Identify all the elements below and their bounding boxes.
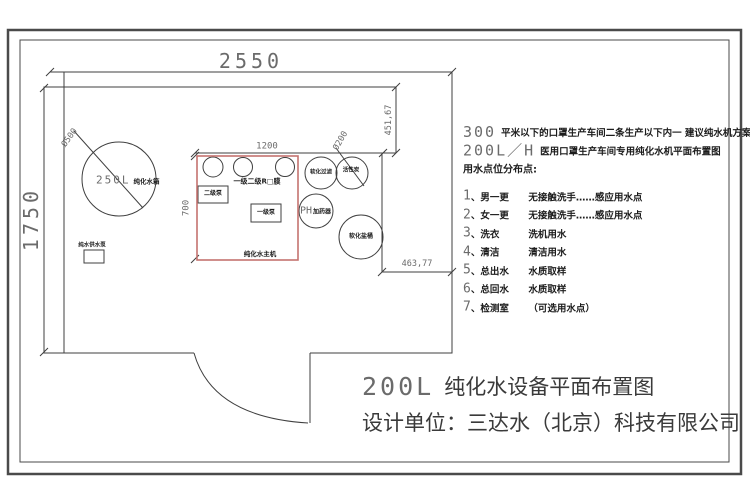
item-number: 3 <box>463 226 471 241</box>
notes-heading: 用水点位分布点: <box>463 161 537 176</box>
dim-niche-width: 463,77 <box>402 260 433 269</box>
item-description: 无接触洗手……感应用水点 <box>528 208 642 222</box>
item-separator: 、 <box>471 300 481 314</box>
drawing-title-text: 纯化水设备平面布置图 <box>444 371 654 401</box>
item-description: 清洁用水 <box>528 245 566 259</box>
activated-carbon-label: 活性炭 <box>343 168 360 174</box>
water-point-item: 5、总出水水质取样 <box>463 263 566 278</box>
water-point-item: 7、检测室（可选用水点） <box>463 300 595 315</box>
drawing-title: 200L 纯化水设备平面布置图 <box>362 371 654 401</box>
item-label: 总出水 <box>480 263 528 277</box>
item-number: 7 <box>463 300 471 315</box>
water-point-item: 6、总回水水质取样 <box>463 281 566 296</box>
item-description: 水质取样 <box>528 282 566 296</box>
item-number: 1 <box>463 189 471 204</box>
ph-dosing-label-big: PH <box>300 206 312 217</box>
item-number: 2 <box>463 207 471 222</box>
item-description: 洗机用水 <box>528 226 566 240</box>
enclosure-right-line <box>382 153 452 272</box>
designer-line: 设计单位：三达水（北京）科技有限公司 <box>362 407 740 437</box>
item-label: 检测室 <box>480 300 528 314</box>
item-label: 洗衣 <box>480 226 528 240</box>
item-description: 无接触洗手……感应用水点 <box>528 189 642 203</box>
stage2-pump-label: 二级泵 <box>204 191 222 197</box>
item-description: （可选用水点） <box>528 300 595 314</box>
drawing-title-volume: 200L <box>362 372 434 401</box>
dim-room-width: 2550 <box>219 51 283 71</box>
cad-floorplan-sheet: 2550 1750 1200 700 451,67 463,77 Ø500 Ø2… <box>0 0 750 489</box>
notes-line1-number: 300 <box>463 123 496 141</box>
ph-dosing-label-small: 加药器 <box>313 207 331 216</box>
item-number: 5 <box>463 263 471 278</box>
notes-line2: 200L／H 医用口罩生产车间专用纯化水机平面布置图 <box>463 140 721 161</box>
item-separator: 、 <box>471 226 481 240</box>
tank-label-name: 纯化水箱 <box>134 175 160 185</box>
water-point-item: 1、男一更无接触洗手……感应用水点 <box>463 189 642 204</box>
dim-unit-height: 700 <box>183 200 192 216</box>
main-unit-label: 纯化水主机 <box>244 251 277 258</box>
notes-line2-text: 医用口罩生产车间专用纯化水机平面布置图 <box>540 143 721 157</box>
designer-line-text: 设计单位：三达水（北京）科技有限公司 <box>362 407 740 437</box>
item-number: 6 <box>463 281 471 296</box>
ro-vessel-1 <box>203 157 223 177</box>
item-label: 总回水 <box>480 282 528 296</box>
ro-vessel-3 <box>276 158 295 177</box>
notes-line1-text: 平米以下的口罩生产车间二条生产以下内一 建议纯水机方案 <box>501 125 750 139</box>
notes-heading-text: 用水点位分布点: <box>463 161 537 176</box>
notes-line2-number: 200L／H <box>463 140 535 161</box>
water-point-item: 2、女一更无接触洗手……感应用水点 <box>463 207 642 222</box>
softener-filter-label: 软化过滤 <box>310 170 332 176</box>
item-label: 清洁 <box>480 245 528 259</box>
tank-diameter-line <box>74 131 143 208</box>
dim-niche-height: 451,67 <box>385 105 394 136</box>
item-separator: 、 <box>471 263 481 277</box>
tank-label: 250L 纯化水箱 <box>96 174 160 187</box>
item-description: 水质取样 <box>528 263 566 277</box>
water-point-item: 3、洗衣洗机用水 <box>463 226 566 241</box>
tank-label-volume: 250L <box>96 174 131 187</box>
dim-room-height: 1750 <box>21 187 41 251</box>
water-point-item: 4、清洁清洁用水 <box>463 244 566 259</box>
item-number: 4 <box>463 244 471 259</box>
item-separator: 、 <box>471 208 481 222</box>
salt-barrel-label: 软化盐桶 <box>349 234 373 240</box>
item-label: 女一更 <box>480 208 528 222</box>
supply-pump-box <box>84 250 104 263</box>
item-label: 男一更 <box>480 189 528 203</box>
room-wall-left-inner-top <box>44 87 396 353</box>
stage1-pump-label: 一级泵 <box>257 210 275 216</box>
ro-vessel-2 <box>234 158 253 177</box>
ph-dosing-label: PH 加药器 <box>300 206 331 217</box>
dim-unit-width: 1200 <box>256 143 278 152</box>
supply-pump-label: 纯水供水泵 <box>78 243 106 249</box>
item-separator: 、 <box>471 189 481 203</box>
main-unit-red-outline <box>197 156 298 260</box>
notes-line1: 300 平米以下的口罩生产车间二条生产以下内一 建议纯水机方案 <box>463 123 750 141</box>
ro-membrane-label: 一级二级R□膜 <box>233 179 280 186</box>
item-separator: 、 <box>471 282 481 296</box>
door-swing-arc <box>194 353 308 423</box>
item-separator: 、 <box>471 245 481 259</box>
